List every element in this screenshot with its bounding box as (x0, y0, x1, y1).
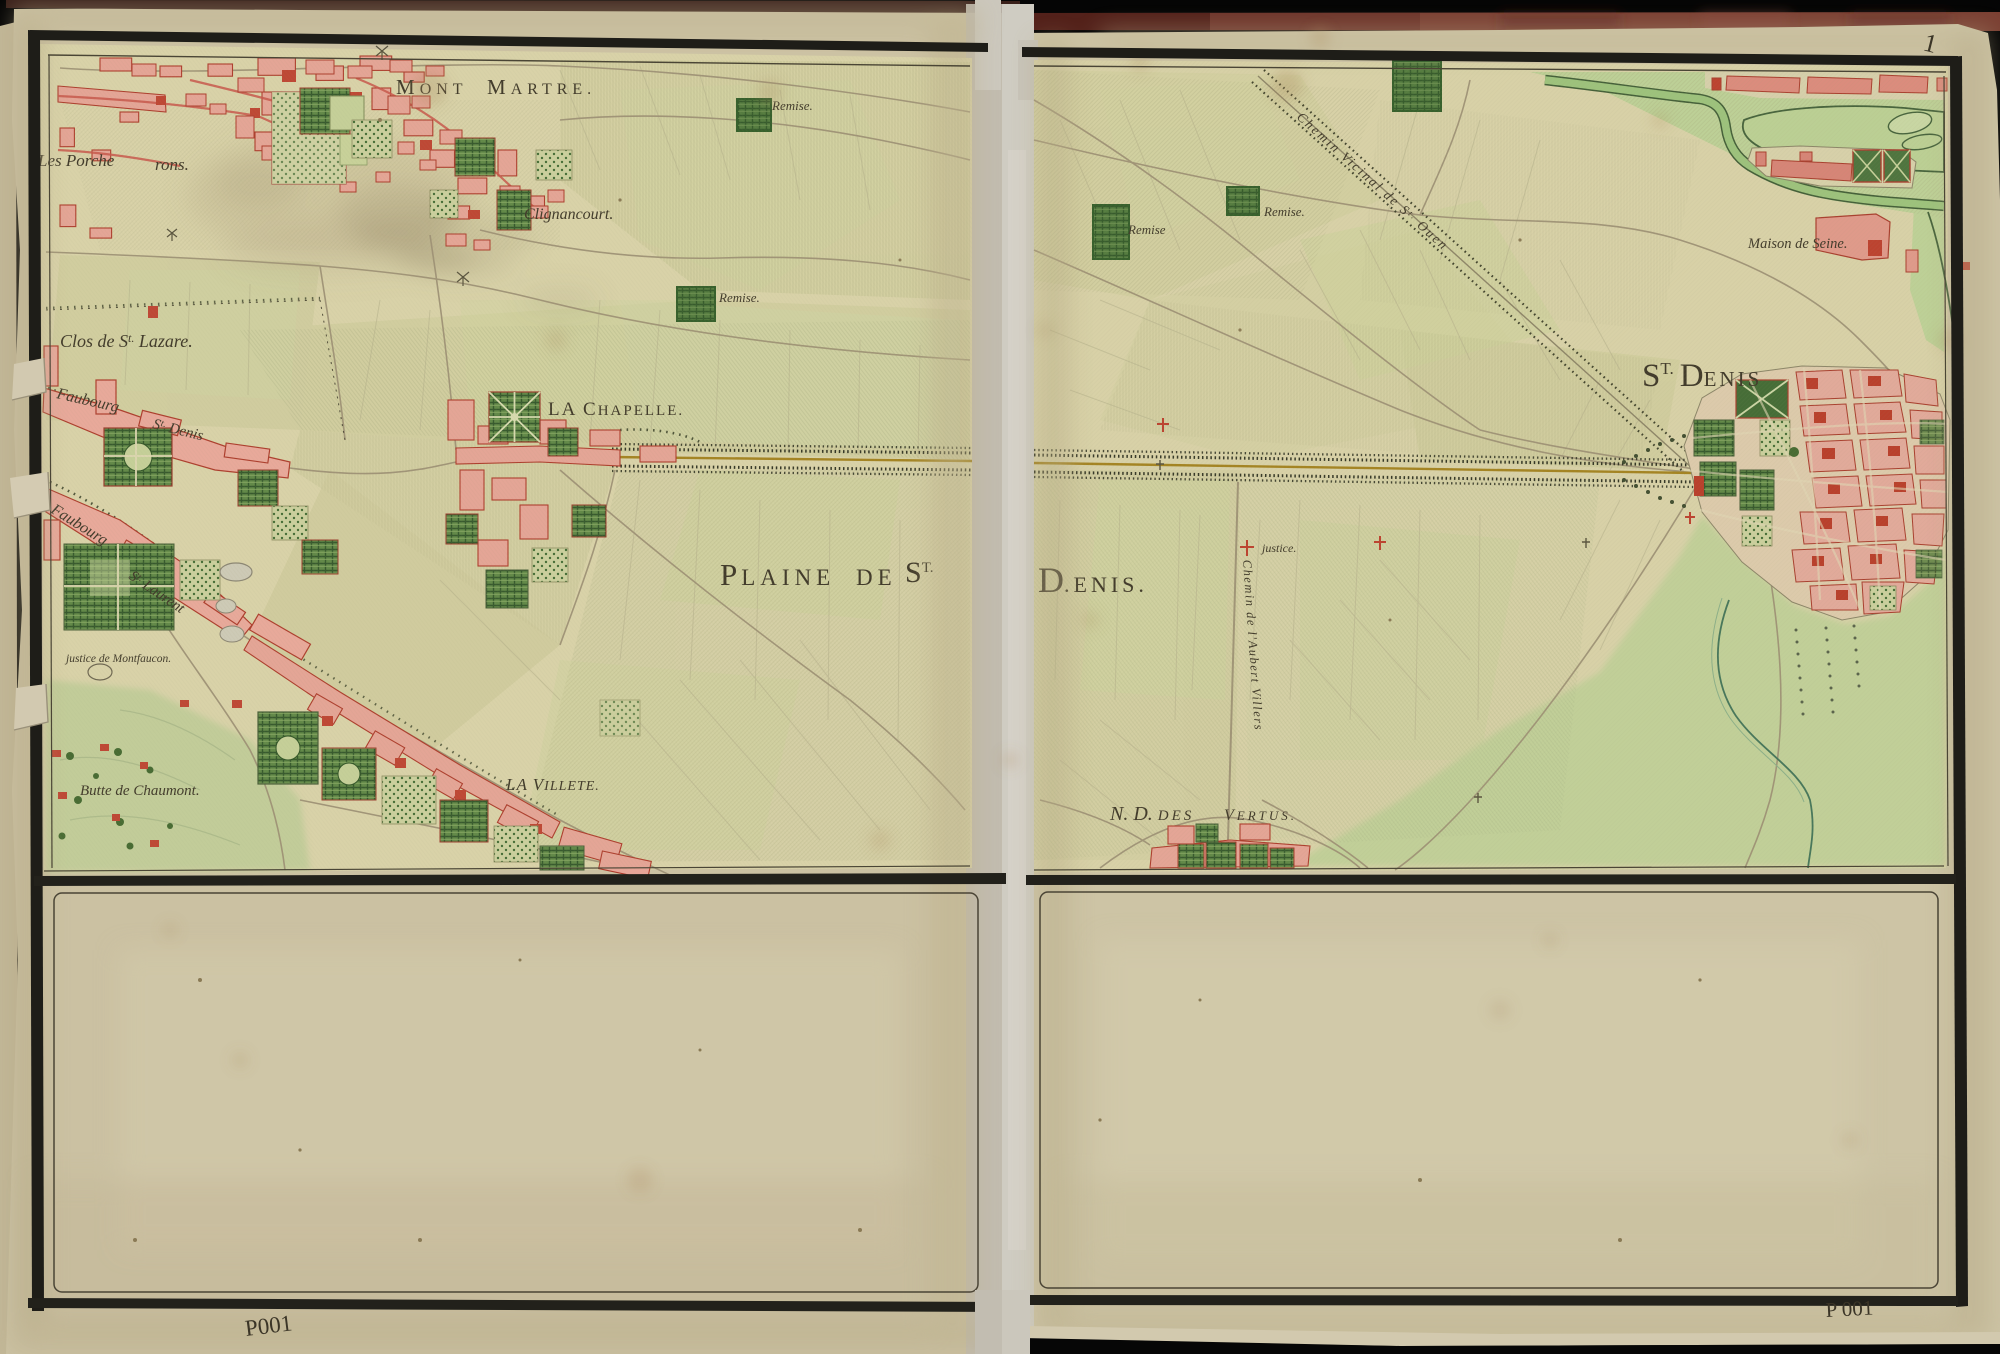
svg-text:P 001: P 001 (1825, 1296, 1874, 1322)
